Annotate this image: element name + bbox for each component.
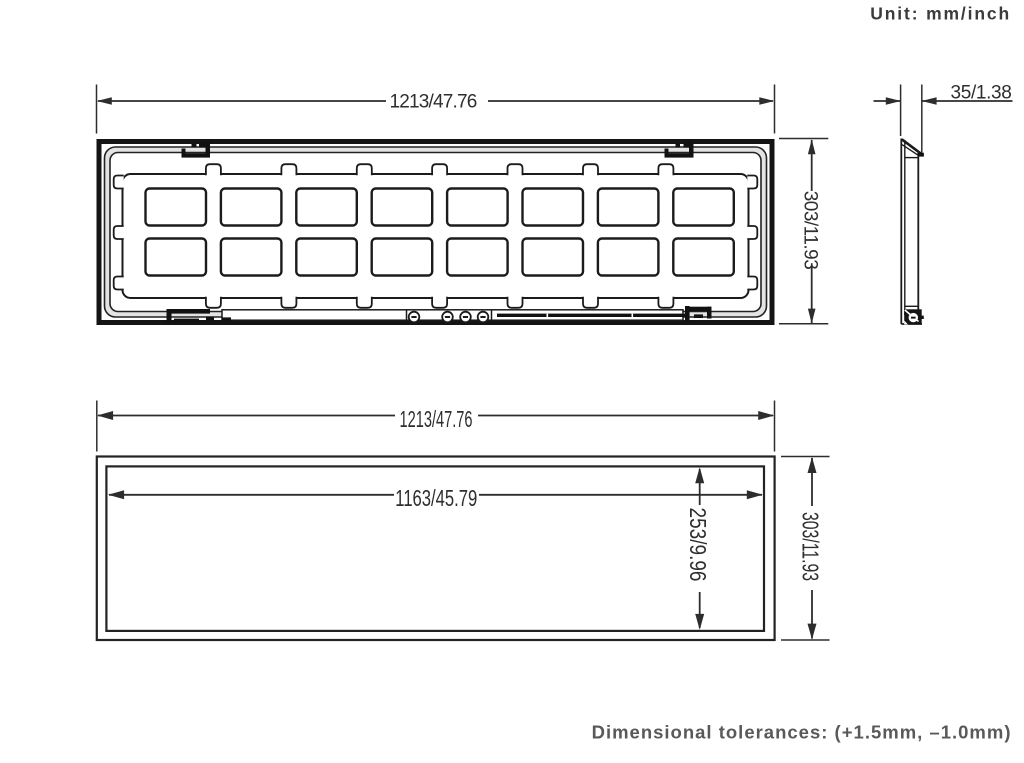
- svg-text:Unit: mm/inch: Unit: mm/inch: [870, 4, 1011, 24]
- svg-text:303/11.93: 303/11.93: [798, 512, 824, 581]
- svg-text:253/9.96: 253/9.96: [685, 508, 711, 582]
- svg-text:1163/45.79: 1163/45.79: [395, 485, 477, 511]
- svg-text:35/1.38: 35/1.38: [951, 83, 1012, 104]
- svg-text:1213/47.76: 1213/47.76: [389, 92, 476, 113]
- svg-text:Dimensional tolerances: (+1.5m: Dimensional tolerances: (+1.5mm, –1.0mm): [592, 722, 1012, 743]
- svg-text:303/11.93: 303/11.93: [800, 191, 821, 270]
- svg-text:1213/47.76: 1213/47.76: [400, 406, 473, 432]
